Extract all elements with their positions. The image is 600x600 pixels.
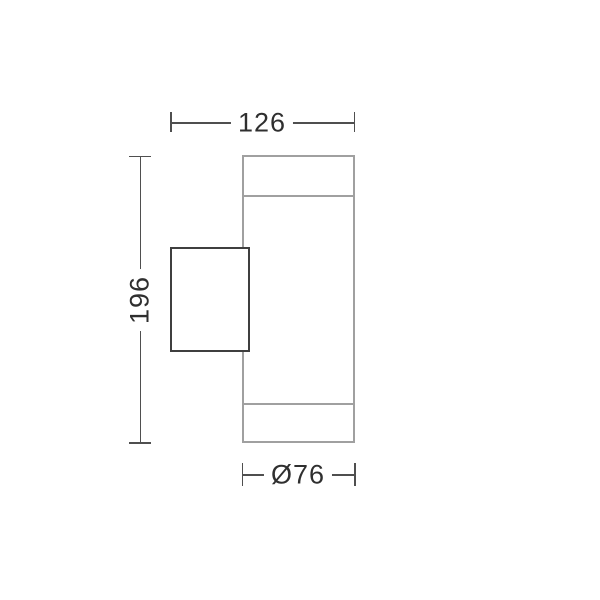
wall-mount-bracket-outline — [170, 247, 250, 352]
height-dimension-top-tick — [129, 156, 151, 158]
fixture-body-outline — [242, 155, 355, 443]
height-dimension-bottom-tick — [129, 442, 151, 444]
diameter-dimension-label: Ø76 — [264, 460, 332, 491]
diameter-dimension-right-tick — [354, 463, 356, 486]
fixture-bottom-seam-line — [242, 403, 355, 405]
diameter-dimension-left-tick — [242, 463, 244, 486]
technical-drawing-canvas: 126 196 Ø76 — [0, 0, 600, 600]
width-dimension-left-tick — [170, 112, 172, 132]
width-dimension-right-tick — [354, 112, 356, 132]
width-dimension-label: 126 — [231, 108, 293, 139]
height-dimension-label: 196 — [125, 269, 156, 331]
fixture-top-seam-line — [242, 195, 355, 197]
